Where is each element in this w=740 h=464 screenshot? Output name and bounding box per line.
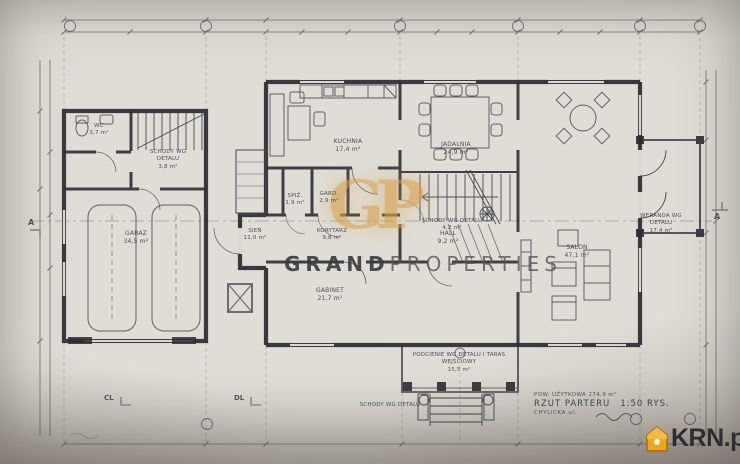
usable-area-text: POW. UŻYTKOWA 274,9 m² — [534, 392, 670, 398]
grand-properties-watermark: GRANDPROPERTIES — [284, 252, 562, 276]
room-label-sien: SIEŃ11,0 m² — [236, 228, 274, 243]
krn-logo-text: KRN.pl — [671, 424, 740, 453]
room-label-gard: GARD.2,9 m² — [313, 191, 345, 206]
floorplan-scan: GP GRANDPROPERTIES WC3,7 m² SCHODY WG DE… — [0, 0, 740, 464]
watermark-word-grand: GRAND — [284, 252, 390, 276]
krn-logo: KRN.pl — [646, 424, 740, 453]
room-label-gabinet: GABINET21,7 m² — [298, 287, 362, 303]
location-text: CHYLICKA ul. — [534, 410, 670, 416]
title-block: POW. UŻYTKOWA 274,9 m² RZUT PARTERU1:50 … — [534, 392, 670, 416]
axis-marker-d: DL — [234, 394, 244, 402]
drawing-scale: 1:50 RYS. — [620, 399, 669, 409]
room-label-weranda: WERANDA WG DETALU17,4 m² — [634, 213, 688, 235]
watermark-word-properties: PROPERTIES — [390, 252, 562, 276]
room-label-korytarz: KORYTARZ9,8 m² — [300, 228, 364, 243]
section-marker-a-left: A — [28, 218, 34, 227]
room-label-kuchnia: KUCHNIA17,4 m² — [316, 138, 380, 154]
room-label-schody-lewe: SCHODY WG DETALU3,8 m² — [140, 149, 196, 171]
room-label-wc: WC3,7 m² — [84, 123, 114, 138]
signature-scribble — [70, 414, 632, 439]
room-label-hall: HALL9,2 m² — [428, 230, 468, 246]
room-label-taras: PODCIENIE WG DETALU I TARAS WEJŚCIOWY15,… — [406, 352, 512, 374]
drawing-title: RZUT PARTERU1:50 RYS. — [534, 399, 670, 409]
room-label-jadalnia: JADALNIA24,9 m² — [424, 141, 488, 157]
section-marker-a-right: A — [714, 212, 720, 221]
room-label-garaz: GARAŻ34,5 m² — [108, 230, 164, 246]
krn-house-icon — [646, 426, 668, 452]
room-label-schody-wejsciowe: SCHODY WG DETALU — [348, 402, 432, 409]
interior-walls — [64, 82, 518, 345]
axis-marker-c: CL — [104, 394, 114, 402]
room-label-spiz: SPIŻ.1,9 m² — [279, 193, 311, 208]
